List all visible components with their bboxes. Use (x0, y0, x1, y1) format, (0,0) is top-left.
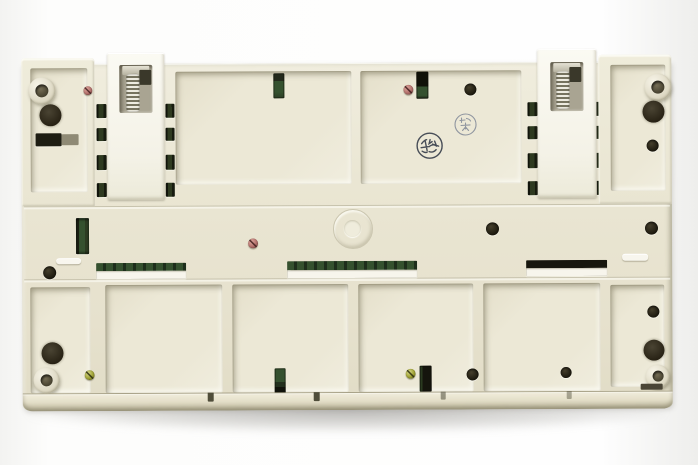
compartment-bottom-2 (232, 284, 348, 393)
round-hole-corner-bottom-right (647, 306, 659, 318)
round-hole-middle-left (43, 266, 56, 279)
screw-yellow-bottom-left (85, 370, 95, 380)
vent-slot (528, 153, 538, 168)
round-hole-top (464, 83, 476, 95)
rim-notch (208, 393, 214, 402)
vent-slot (96, 104, 106, 118)
ink-stamp-faint-icon (453, 112, 477, 136)
round-hole-middle-center (486, 222, 499, 235)
ink-stamp-dark-icon (416, 132, 444, 160)
compartment-top-right (360, 70, 521, 184)
rim-notch (441, 392, 446, 400)
vent-slot (165, 104, 174, 118)
screw-pink-middle (248, 238, 258, 248)
compartment-bottom-3 (358, 283, 473, 392)
bottom-rim (23, 391, 673, 412)
vent-slot (97, 128, 107, 141)
module-underside (0, 0, 698, 465)
pcb-slot-top-a (273, 73, 284, 98)
keyhole-slot-bottom-right (643, 340, 664, 361)
pcb-window-center (287, 261, 417, 279)
pcb-slot-bottom-a (275, 368, 286, 393)
keyhole-slot-bottom-left (41, 342, 63, 364)
round-hole-bottom-right (561, 367, 572, 378)
mount-hole-bottom-right (653, 371, 664, 382)
rim-notch (567, 391, 572, 399)
rim-notch (314, 392, 320, 401)
screw-yellow-bottom-center (406, 369, 416, 379)
vent-slot (528, 126, 538, 139)
rect-slot-shadow (62, 134, 79, 145)
pcb-window-shelf (96, 271, 186, 279)
vent-slot (97, 155, 107, 170)
vent-slot (528, 181, 538, 195)
vent-slot (166, 128, 175, 141)
mold-tab-right (622, 254, 648, 261)
pcb-slot-top-b (416, 72, 428, 99)
mount-hole-top-right (651, 81, 664, 94)
round-hole-bottom-center (467, 368, 479, 380)
din-clip-right-spring (556, 71, 569, 109)
mold-circle-inner (344, 220, 361, 237)
vent-slot (527, 102, 537, 116)
mold-tab-left (56, 258, 81, 264)
keyhole-slot-top-left (39, 104, 61, 126)
pcb-window-left (96, 263, 186, 279)
screw-pink-top-center (403, 85, 413, 95)
vent-slot (166, 183, 175, 197)
vent-slot (166, 155, 175, 170)
mount-hole-bottom-left (41, 374, 53, 386)
mount-hole-top-left (35, 84, 48, 97)
round-hole-middle-right (645, 222, 658, 235)
photo-stage (0, 0, 698, 465)
rect-slot-top-left (36, 133, 62, 146)
din-clip-right-latch (569, 67, 581, 82)
din-clip-left-latch (139, 70, 151, 85)
compartment-bottom-4 (483, 283, 600, 392)
vent-slot (97, 183, 107, 197)
pcb-slot-middle (76, 218, 89, 254)
pcb-window-shelf (526, 268, 607, 276)
round-hole-top-right (647, 140, 659, 152)
keyhole-slot-top-right (642, 101, 664, 123)
corner-shadow-bar (641, 384, 663, 390)
din-clip-left-spring (126, 74, 139, 112)
compartment-bottom-1 (105, 285, 222, 394)
pcb-slot-bottom-b (420, 366, 432, 392)
screw-pink-top-left (83, 86, 92, 95)
pcb-window-shelf (287, 270, 417, 279)
pcb-window-right (526, 260, 607, 276)
compartment-top-left (175, 71, 351, 185)
